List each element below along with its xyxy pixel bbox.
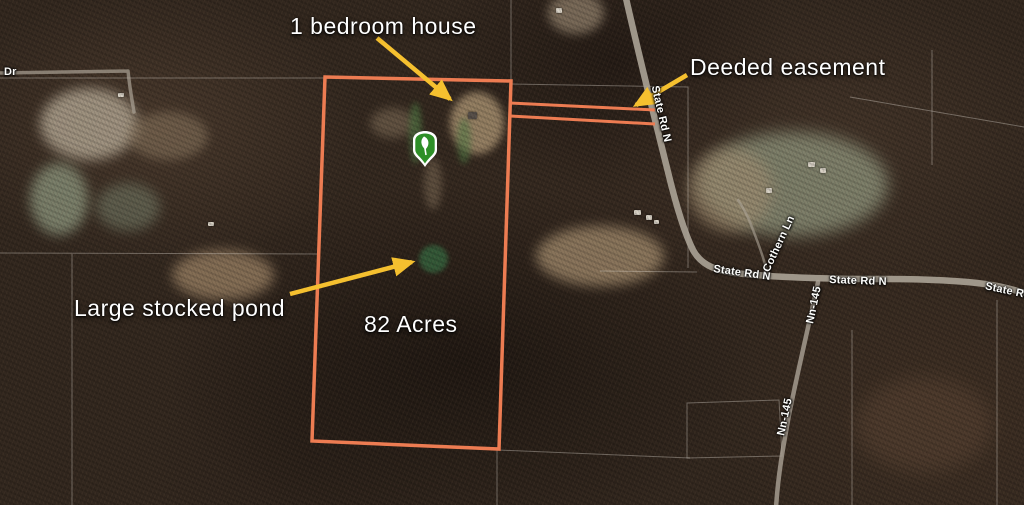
house-annotation: 1 bedroom house [290, 13, 477, 40]
building [808, 162, 815, 167]
house-arrow [377, 38, 450, 99]
stocked-pond [419, 245, 448, 273]
building [646, 215, 652, 220]
clearing-top [548, 0, 604, 34]
clearing-left-large [40, 88, 138, 160]
building [118, 93, 124, 97]
building [556, 8, 562, 13]
clearing-left-strip [128, 112, 208, 160]
road-label-state-rd-n-east: State Rd N [829, 274, 887, 288]
property-marker [411, 130, 439, 168]
aerial-property-map: 1 bedroom house Deeded easement Large st… [0, 0, 1024, 505]
patch-bottomright [856, 378, 992, 472]
green-strip-2 [457, 118, 471, 164]
acreage-annotation: 82 Acres [364, 311, 458, 338]
building [208, 222, 214, 226]
house-structure [468, 112, 477, 119]
building [820, 168, 826, 173]
building [766, 188, 772, 193]
building [654, 220, 659, 224]
field-left-green [30, 163, 88, 235]
pond-annotation: Large stocked pond [74, 295, 285, 322]
field-right-tan [688, 148, 772, 232]
road-label-nn-145-lower: Nn-145 [775, 397, 795, 437]
easement-lines [510, 103, 655, 124]
road-label-state-rd-edge: State Rd [984, 280, 1024, 301]
road-label-state-rd-n-vertical: State Rd N [649, 85, 674, 144]
easement-annotation: Deeded easement [690, 54, 885, 81]
pond-arrow [290, 262, 412, 294]
tree-shield-marker-icon [411, 130, 439, 168]
building [634, 210, 641, 215]
field-bottomleft-tan [172, 250, 274, 300]
road-label-nn-145-upper: Nn-145 [804, 285, 824, 325]
road-label-dr: Dr [4, 66, 17, 78]
field-left-green-2 [96, 183, 160, 231]
field-mid-tan [536, 226, 664, 286]
